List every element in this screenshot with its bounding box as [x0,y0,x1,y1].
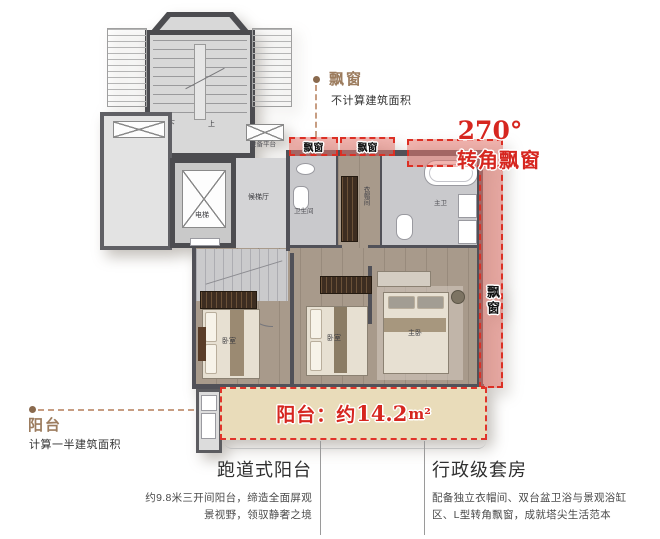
bedroom2-wardrobe [320,276,372,294]
master-pillow-right [417,296,444,309]
cloakroom-label: 衣帽间 [361,186,369,206]
balcony-outer-rim [224,441,486,449]
stair-up-label: 上 [208,121,215,129]
section-left-line1: 约9.8米三开间阳台，缔造全面屏观 [110,490,312,507]
corner-bay-degrees: 270° [440,116,540,145]
corner-bay-label: 转角飘窗 [444,144,554,173]
bay-side-label: 飘窗 [483,285,502,317]
neighbor-window [113,121,165,138]
plant-icon [451,290,465,304]
bedroom1-wall [290,253,294,386]
top-callout-dot [313,76,320,83]
balcony-callout-dot [29,406,36,413]
bedroom1-wardrobe [200,291,257,309]
vanity-sink-1-icon [458,194,477,218]
bay-window-box-left: 飘窗 [289,137,338,156]
section-left: 跑道式阳台 约9.8米三开间阳台，缔造全面屏观 景视野，领驭静奢之境 [110,456,312,524]
balcony-tag-prefix: 阳台：约 [276,400,356,427]
balcony-callout-dash [38,409,194,411]
elevator-hall [234,158,290,248]
equipment-platform-label: 设备平台 [250,141,276,149]
top-callout-title: 飘窗 [329,68,363,89]
corner-bay-right-strip [479,165,503,388]
bedroom1-headboard [198,327,206,361]
equipment-platform-box [246,124,284,141]
bedroom2-wall [368,266,372,324]
ac-platform-box-2 [201,413,216,439]
cloakroom-wall [380,156,382,248]
master-bath-label: 主卫 [434,200,447,208]
bedroom1-pillow-top [205,312,217,342]
section-right-line2: 区、L型转角飘窗，成就塔尖生活范本 [432,507,656,524]
apartment-left-wall [192,248,196,388]
leader-line-right [424,441,425,535]
elevator-door [190,238,220,246]
elevator-label: 电梯 [195,212,209,220]
balcony-tag-unit: m² [408,405,430,423]
balcony: 阳台：约 14.2 m² [220,387,487,440]
hall-apartment-wall [286,156,290,251]
bay-window-box-left-label: 飘窗 [304,139,324,154]
sink-icon [296,163,315,175]
section-left-line2: 景视野，领驭静奢之境 [110,507,312,524]
vanity-sink-2-icon [458,220,477,244]
floorplan-page: 下 上 电梯 设备平台 候梯厅 卫生间 衣帽间 [0,0,660,539]
section-right-heading: 行政级套房 [432,456,656,482]
balcony-tag-value: 14.2 [356,401,407,426]
hatch-panel-left [107,28,147,107]
section-right: 行政级套房 配备独立衣帽间、双台盆卫浴与景观浴缸 区、L型转角飘窗，成就塔尖生活… [432,456,656,524]
leader-line-left [320,441,321,535]
balcony-callout-note: 计算一半建筑面积 [29,436,121,452]
master-toilet-icon [396,214,413,240]
balcony-callout-title: 阳台 [28,414,62,435]
elevator-hall-label: 候梯厅 [248,194,269,202]
bathroom-label: 卫生间 [294,208,314,216]
bay-window-box-right: 飘窗 [340,137,395,156]
bedroom1-pillow-bottom [205,344,217,374]
master-dresser [377,271,431,287]
cloakroom-wardrobe [341,176,358,242]
bedroom2-pillow-top [310,309,322,339]
section-right-line1: 配备独立衣帽间、双台盆卫浴与景观浴缸 [432,490,656,507]
bay-window-box-right-label: 飘窗 [358,139,378,154]
top-callout-note: 不计算建筑面积 [331,92,412,108]
bedroom2-pillow-bottom [310,341,322,371]
master-bedroom-label: 主卧 [408,330,422,338]
ac-platform-box-1 [201,395,217,411]
top-callout-dash [315,85,317,137]
toilet-icon [293,186,309,210]
hatch-panel-right [252,28,292,107]
bedroom2-label: 卧室 [327,335,341,343]
bedroom1-label: 卧室 [222,338,236,346]
section-left-heading: 跑道式阳台 [110,456,312,482]
master-pillow-left [388,296,415,309]
